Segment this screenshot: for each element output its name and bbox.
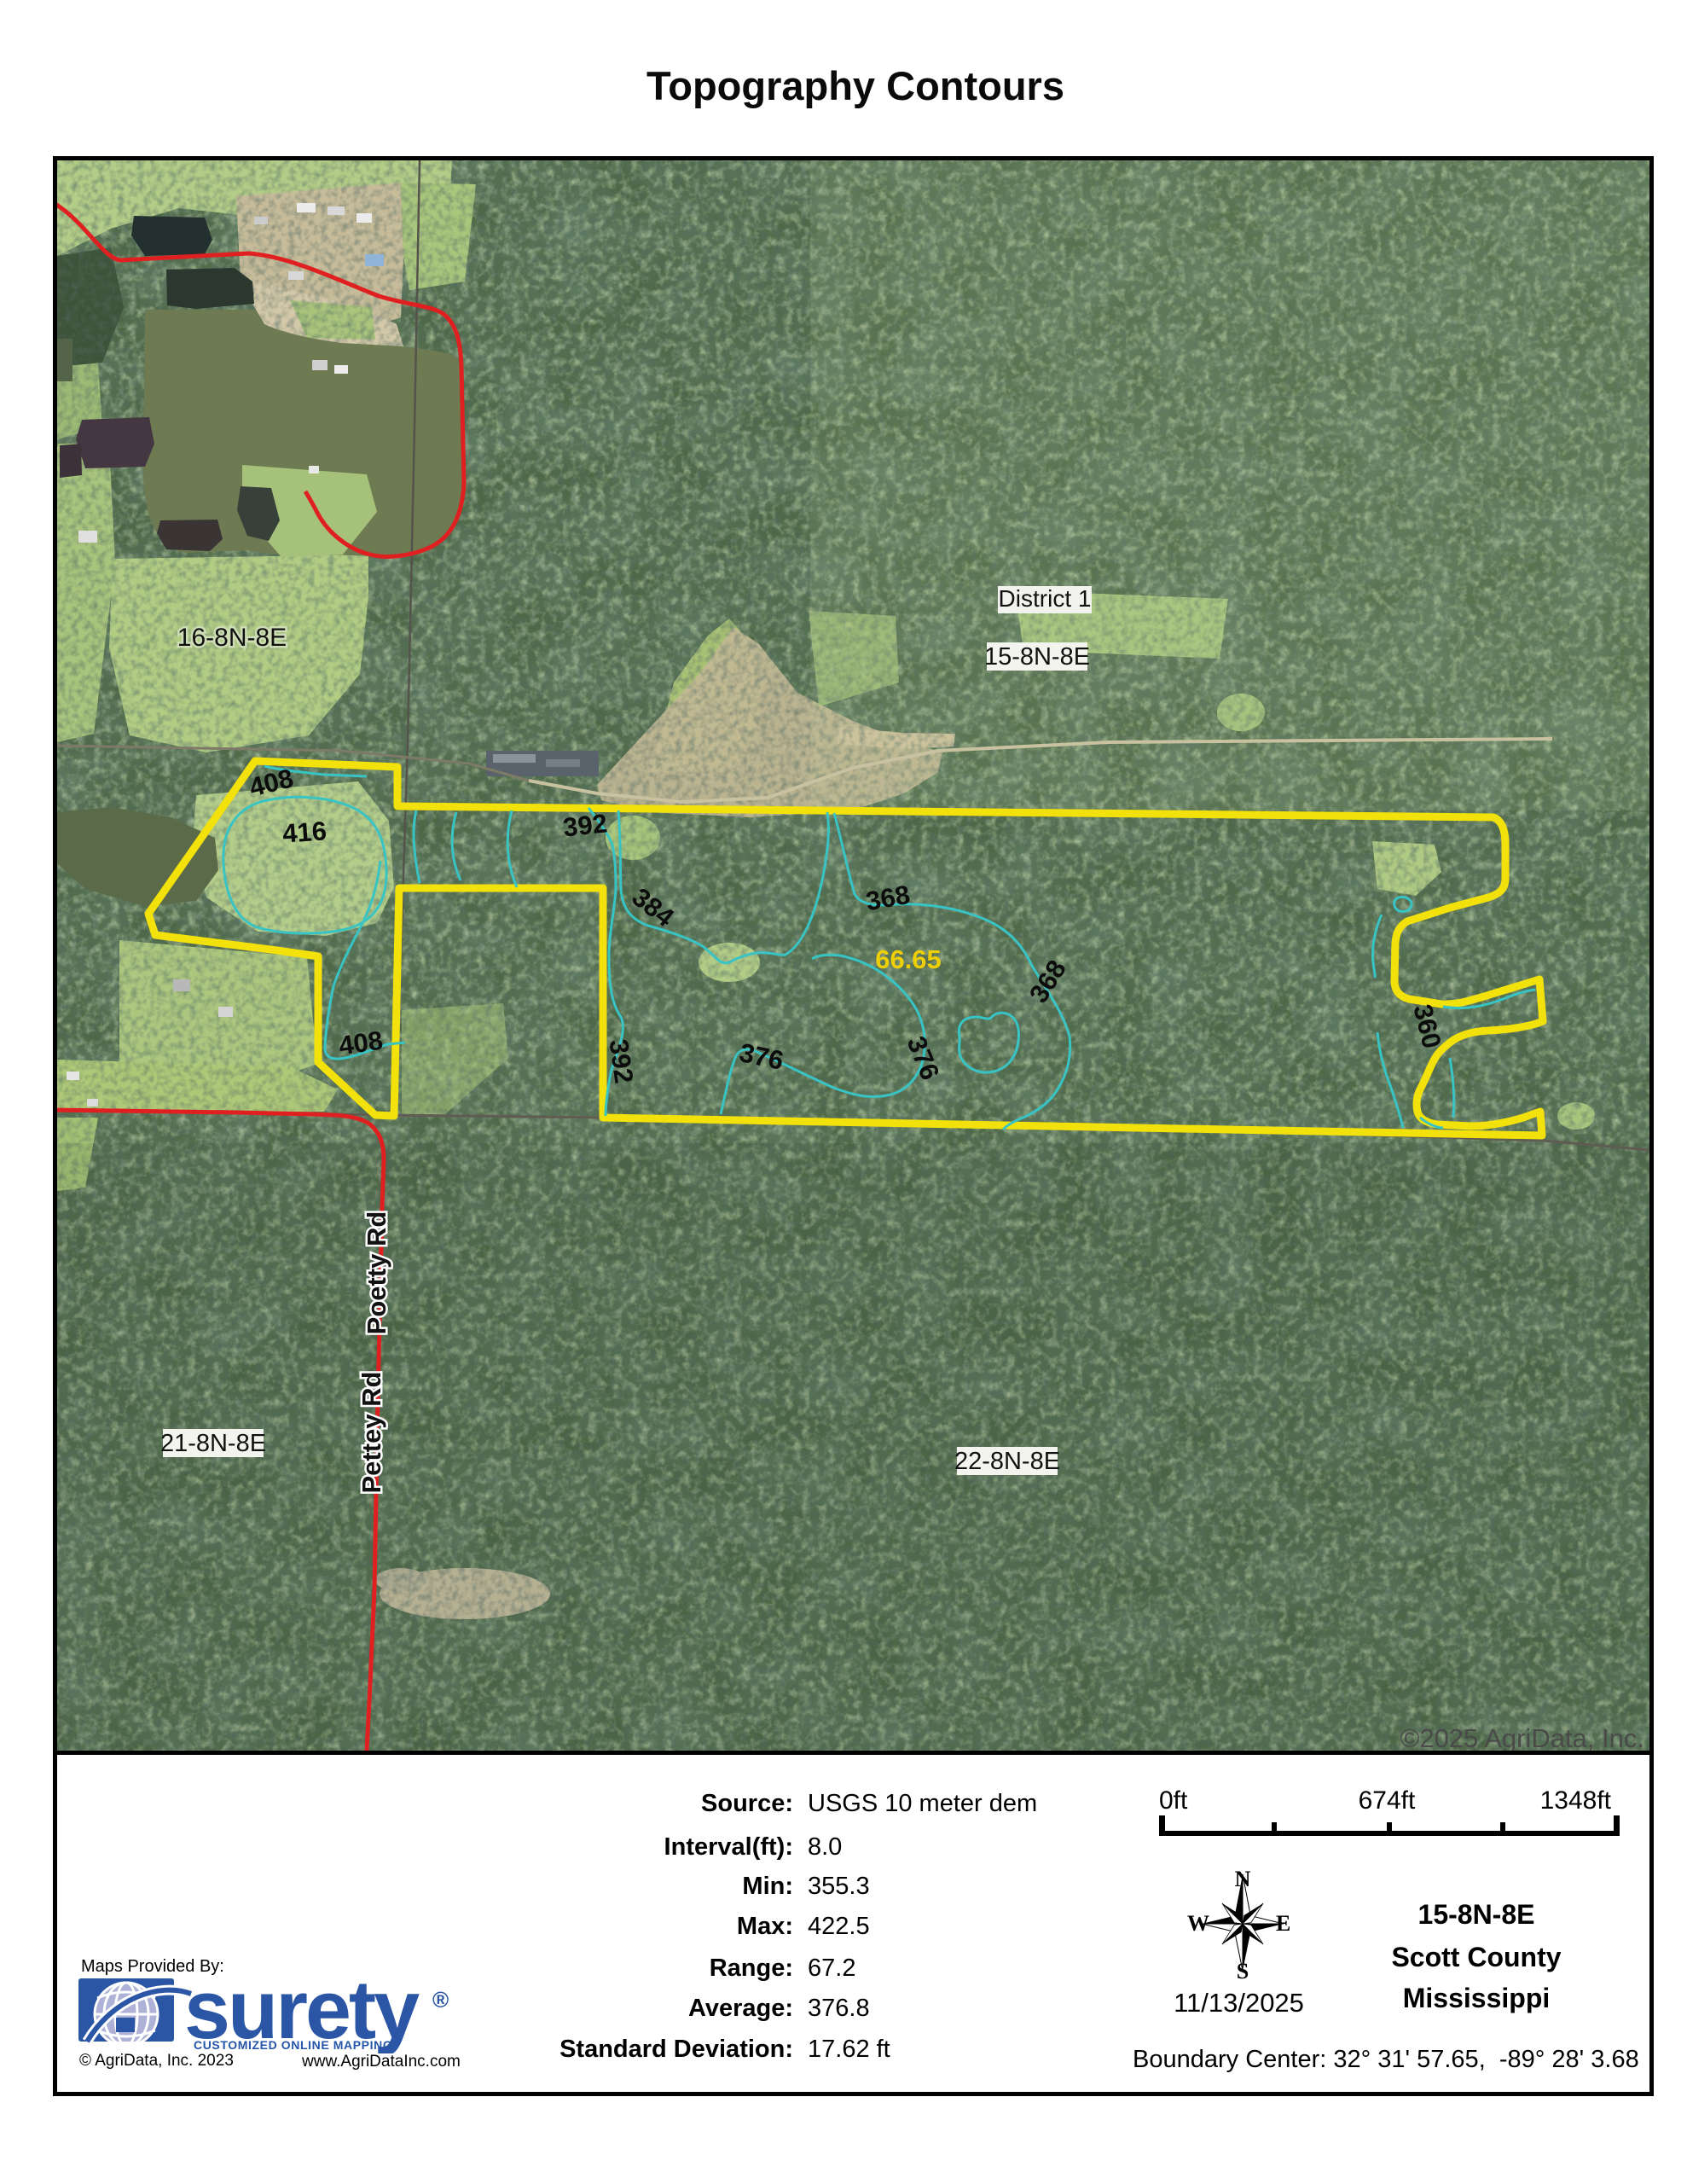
svg-text:392: 392 — [604, 1037, 640, 1085]
svg-text:15-8N-8E: 15-8N-8E — [984, 643, 1090, 671]
svg-text:®: ® — [432, 1987, 449, 2013]
svg-text:21-8N-8E: 21-8N-8E — [160, 1430, 266, 1457]
svg-text:392: 392 — [561, 808, 608, 842]
svg-text:CUSTOMIZED ONLINE MAPPING: CUSTOMIZED ONLINE MAPPING — [194, 2038, 392, 2052]
svg-text:Poetty Rd: Poetty Rd — [362, 1211, 391, 1335]
svg-text:22-8N-8E: 22-8N-8E — [954, 1448, 1060, 1475]
svg-text:District 1: District 1 — [999, 585, 1092, 612]
svg-text:Pettey Rd: Pettey Rd — [357, 1372, 386, 1494]
svg-text:16-8N-8E: 16-8N-8E — [177, 624, 287, 652]
svg-text:408: 408 — [337, 1025, 385, 1061]
svg-text:416: 416 — [281, 816, 328, 849]
svg-text:66.65: 66.65 — [875, 944, 942, 974]
svg-text:©2025 AgriData, Inc.: ©2025 AgriData, Inc. — [1400, 1723, 1644, 1753]
